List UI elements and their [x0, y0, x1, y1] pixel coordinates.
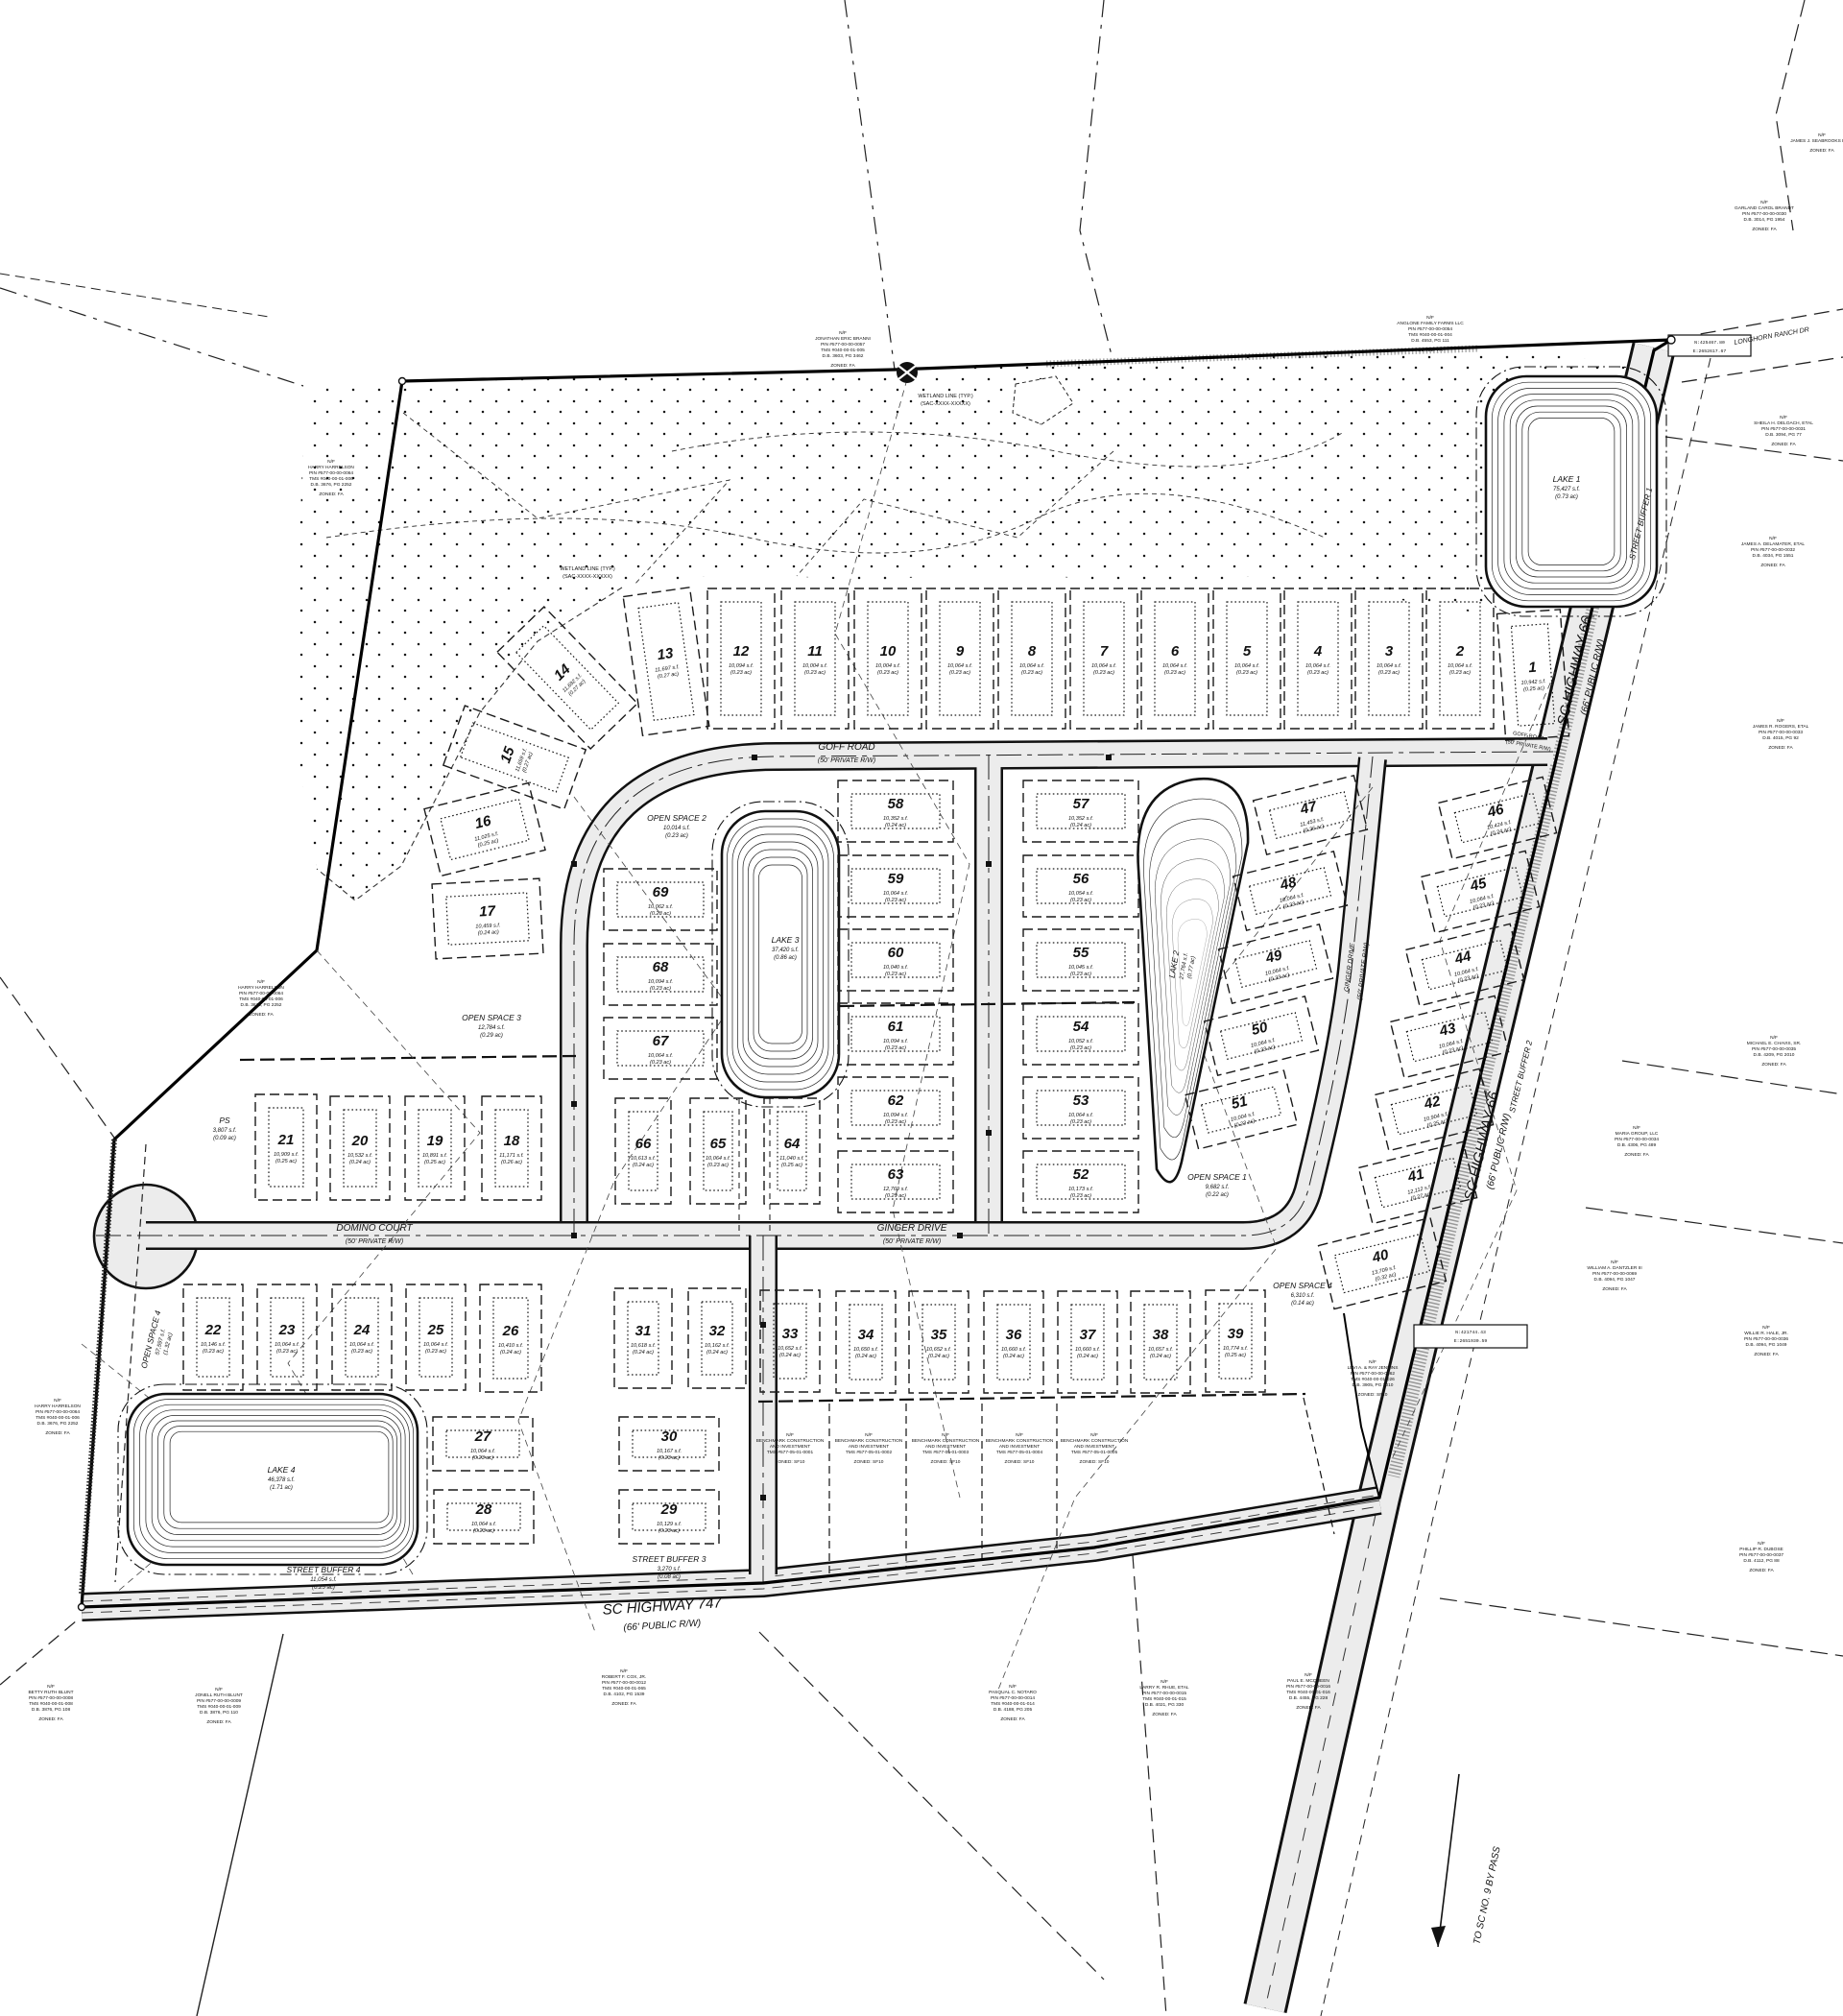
offsite-parcel-lines — [0, 0, 1843, 2016]
owner-note-line: PHILLIP R. DUBOSE — [1739, 1547, 1783, 1552]
lot-number: 39 — [1228, 1326, 1244, 1342]
owner-note-line: D.B. 4455, PG 228 — [1289, 1695, 1328, 1701]
lot-number: 67 — [653, 1033, 669, 1049]
lot-area: 10,613 s.f. — [631, 1156, 656, 1162]
owner-note: N/FGARLAND CAROL BRANDTPIN #577-00-00-00… — [1735, 200, 1794, 232]
lot-area: 10,064 s.f. — [471, 1522, 496, 1527]
lot: 5210,173 s.f.(0.23 ac) — [1023, 1151, 1138, 1212]
owner-note-line: ZONED: FA — [830, 363, 855, 369]
lot-area: 10,657 s.f. — [1148, 1347, 1173, 1353]
lot-acres: (0.23 ac) — [1021, 670, 1042, 676]
lot-acres: (0.24 ac) — [1003, 1354, 1024, 1359]
lake-label-name: LAKE 4 — [268, 1465, 296, 1475]
ginger-drive-rw: (50' PRIVATE R/W) — [883, 1238, 941, 1245]
lot: 2110,909 s.f.(0.25 ac) — [255, 1094, 317, 1200]
owner-note-line: TMS #577-05-01-0001 — [767, 1450, 814, 1455]
lot: 1010,004 s.f.(0.23 ac) — [854, 588, 921, 729]
pump-station-label: PS3,807 s.f.(0.09 ac) — [213, 1116, 237, 1141]
lot-acres: (0.23 ac) — [1164, 670, 1185, 676]
to-sc9-label: TO SC NO. 9 BY PASS — [1472, 1845, 1502, 1945]
lot-number: 21 — [277, 1132, 295, 1148]
lot-area: 10,352 s.f. — [883, 816, 908, 822]
owner-note-line: TMS #040-00-01-006 — [309, 476, 353, 482]
lot-number: 19 — [427, 1133, 443, 1149]
lot-number: 59 — [888, 871, 904, 887]
owner-note: N/FMICHAEL E. CHAVIS, SR.PIN #577-00-00-… — [1747, 1035, 1802, 1068]
owner-note-line: PIN #577-00-00-0064 — [309, 470, 353, 476]
lot-area: 10,532 s.f. — [347, 1153, 372, 1159]
owner-note: N/FPHILLIP R. DUBOSEPIN #577-00-00-0037D… — [1739, 1541, 1783, 1573]
owner-note-line: PIN #577-00-00-0030 — [1742, 211, 1786, 217]
domino-court-rw: (50' PRIVATE R/W) — [346, 1238, 403, 1245]
owner-note-line: N/F — [942, 1432, 949, 1438]
lake-label-area: 75,427 s.f. — [1553, 487, 1580, 492]
lot-area: 10,064 s.f. — [883, 891, 908, 897]
hwy747-rw: (66' PUBLIC R/W) — [623, 1619, 701, 1634]
lot-area: 10,004 s.f. — [802, 663, 827, 669]
lot: 5410,052 s.f.(0.23 ac) — [1023, 1003, 1138, 1065]
lot-number: 49 — [1263, 947, 1284, 967]
lot-acres: (0.23 ac) — [1070, 972, 1091, 977]
owner-note-line: BENCHMARK CONSTRUCTION — [912, 1438, 980, 1444]
street-buffer-label-acres: (0.25 ac) — [312, 1585, 335, 1591]
owner-note-line: PIN #577-00-00-0032 — [1751, 547, 1795, 553]
lot-number: 13 — [657, 645, 676, 663]
lot: 5610,054 s.f.(0.23 ac) — [1023, 855, 1138, 917]
lot-number: 54 — [1073, 1019, 1089, 1035]
owner-note-line: BENCHMARK CONSTRUCTION — [1061, 1438, 1129, 1444]
lot: 810,064 s.f.(0.23 ac) — [998, 588, 1065, 729]
lot: 6110,094 s.f.(0.23 ac) — [838, 1003, 953, 1065]
owner-note: N/FHARRY HARRELSONPIN #577-00-00-0064TMS… — [35, 1398, 81, 1436]
owner-note: N/FJONATHAN ERIC BRANNIPIN #577-00-00-00… — [815, 330, 871, 369]
owner-note-line: N/F — [1769, 536, 1777, 541]
owner-note-line: PIN #577-00-00-0012 — [602, 1680, 646, 1686]
owner-note-line: D.B. 3876, PG 110 — [200, 1710, 238, 1716]
owner-note-line: N/F — [1009, 1684, 1017, 1690]
owner-note-line: WILLIAM A. DANTZLER III — [1587, 1265, 1641, 1271]
lot: 6010,040 s.f.(0.23 ac) — [838, 929, 953, 991]
lot-number: 62 — [888, 1092, 904, 1109]
owner-note-line: N/F — [1780, 415, 1787, 420]
lot: 5310,064 s.f.(0.23 ac) — [1023, 1077, 1138, 1139]
lot-number: 7 — [1100, 643, 1109, 660]
street-buffer-label-area: 3,270 s.f. — [658, 1567, 682, 1572]
lot-number: 57 — [1073, 796, 1089, 812]
lot-acres: (0.23 ac) — [730, 670, 752, 676]
lot-area: 10,410 s.f. — [498, 1343, 523, 1349]
lot: 1210,094 s.f.(0.23 ac) — [707, 588, 775, 729]
lot: 6411,040 s.f.(0.25 ac) — [764, 1098, 820, 1204]
owner-note-line: TMS #577-05-01-0004 — [996, 1450, 1043, 1455]
owner-note-line: PAUL E. MCQUEEN — [1287, 1678, 1329, 1684]
owner-note-line: N/F — [839, 330, 847, 336]
lot-number: 3 — [1385, 643, 1394, 660]
lot-area: 10,064 s.f. — [648, 1053, 673, 1059]
lot-acres: (0.23 ac) — [1378, 670, 1400, 676]
owner-note-line: ZONED: SF10 — [1358, 1392, 1388, 1398]
open-space-label-area: 12,784 s.f. — [478, 1025, 505, 1031]
lot-area: 10,909 s.f. — [274, 1152, 299, 1158]
to-sc9-arrow-icon — [1431, 1774, 1459, 1947]
lot: 2510,064 s.f.(0.23 ac) — [406, 1284, 466, 1390]
lot-number: 66 — [635, 1136, 652, 1152]
lot-acres: (0.23 ac) — [1070, 1119, 1091, 1125]
goff-road-label: GOFF ROAD — [818, 742, 874, 753]
owner-note-line: ZONED: FA — [611, 1701, 636, 1707]
owner-note-line: N/F — [1777, 718, 1784, 724]
lot-number: 15 — [497, 744, 518, 765]
owner-note-line: HARRY HARRELSON — [35, 1404, 81, 1409]
lot-acres: (0.25 ac) — [1225, 1353, 1246, 1358]
open-space-label: OPEN SPACE 19,682 s.f.(0.22 ac) — [1187, 1172, 1247, 1198]
lot-number: 35 — [931, 1327, 947, 1343]
owner-note-line: TMS #577-05-01-0005 — [1071, 1450, 1118, 1455]
owner-note-line: D.B. 3014, PG 1954 — [1744, 217, 1785, 223]
street-buffer-label-name: STREET BUFFER 3 — [633, 1554, 706, 1564]
lot: 2610,410 s.f.(0.24 ac) — [480, 1284, 541, 1392]
ginger-drive-label: GINGER DRIVE — [877, 1223, 947, 1234]
lot-area: 10,660 s.f. — [1075, 1347, 1100, 1353]
lot-number: 2 — [1455, 643, 1465, 660]
coordinate-text: N:425467.80 — [1694, 340, 1725, 346]
open-space-label: OPEN SPACE 210,014 s.f.(0.23 ac) — [647, 813, 706, 839]
lake-label: LAKE 175,427 s.f.(0.73 ac) — [1553, 474, 1581, 500]
owner-note: N/FWILLIE R. HALE, JR.PIN #577-00-00-003… — [1744, 1325, 1788, 1357]
lake-label: LAKE 446,378 s.f.(1.71 ac) — [268, 1465, 296, 1491]
owner-note-line: N/F — [786, 1432, 794, 1438]
lot-number: 64 — [784, 1136, 801, 1152]
owner-note-line: D.B. 4094, PG 1047 — [1594, 1277, 1636, 1283]
owner-note: N/FROBERT F. COX, JR.PIN #577-00-00-0012… — [602, 1668, 647, 1707]
owner-note-line: N/F — [1762, 1325, 1770, 1331]
owner-note-line: AND INVESTMENT — [770, 1444, 810, 1450]
owner-note-line: ZONED: FA — [45, 1430, 70, 1436]
lot-number: 32 — [709, 1323, 726, 1339]
lot-area: 10,064 s.f. — [1448, 663, 1472, 669]
lot: 5710,352 s.f.(0.24 ac) — [1023, 780, 1138, 842]
owner-note-line: TMS #040-00-01-006 — [36, 1415, 80, 1421]
pump-station-label-acres: (0.09 ac) — [213, 1136, 236, 1141]
lot: 6312,769 s.f.(0.29 ac) — [838, 1151, 953, 1212]
lot-number: 68 — [653, 959, 669, 975]
lot-number: 55 — [1073, 945, 1089, 961]
open-space-label: OPEN SPACE 312,784 s.f.(0.29 ac) — [462, 1013, 521, 1039]
open-space-label: OPEN SPACE 457,597 s.f.(1.32 ac) — [139, 1309, 179, 1374]
lot-number: 69 — [653, 884, 669, 900]
lot-number: 24 — [353, 1322, 371, 1338]
lot-area: 10,064 s.f. — [947, 663, 972, 669]
lot-acres: (0.23 ac) — [658, 1455, 680, 1461]
owner-note-line: D.B. 4306, PG 489 — [1617, 1142, 1657, 1148]
lot-number: 44 — [1452, 948, 1473, 968]
lot-number: 34 — [858, 1327, 874, 1343]
open-space-label-name: OPEN SPACE 3 — [462, 1013, 521, 1022]
lot-area: 10,064 s.f. — [1234, 663, 1259, 669]
street-buffer-label-acres: (0.08 ac) — [658, 1574, 681, 1580]
owner-note-line: N/F — [1758, 1541, 1765, 1547]
owner-note-line: TMS #577-05-01-0002 — [846, 1450, 893, 1455]
owner-note-line: ZONED: FA — [206, 1719, 231, 1725]
lot: 3410,650 s.f.(0.24 ac) — [836, 1291, 896, 1393]
lot-acres: (0.26 ac) — [501, 1160, 522, 1165]
owner-note-line: ZONED: FA — [1152, 1712, 1177, 1717]
owner-note-line: HARRY HARRELSON — [308, 465, 354, 470]
domino-court-label: DOMINO COURT — [336, 1223, 413, 1234]
pump-station-label-area: 3,807 s.f. — [213, 1128, 237, 1134]
owner-note-line: TMS #040-00-01-014 — [991, 1701, 1035, 1707]
lot-acres: (0.23 ac) — [650, 1060, 671, 1066]
lot-area: 10,064 s.f. — [1068, 1113, 1093, 1118]
coordinate-text: N:421744.43 — [1455, 1330, 1486, 1335]
lot: 2310,064 s.f.(0.23 ac) — [257, 1284, 317, 1390]
owner-note: N/FPASQUAL C. NOTAROPIN #577-00-00-0014T… — [989, 1684, 1037, 1722]
lot-area: 10,064 s.f. — [1305, 663, 1330, 669]
owner-note-line: JAMES R. ROGERS, ETAL — [1753, 724, 1809, 730]
lot-number: 27 — [474, 1428, 491, 1445]
owner-note-line: ZONED: FA — [1000, 1716, 1025, 1722]
lot: 6510,064 s.f.(0.23 ac) — [690, 1098, 746, 1204]
lot-area: 11,040 s.f. — [779, 1156, 804, 1162]
owner-note-line: D.B. 3603, PG 3462 — [823, 353, 864, 359]
open-space-label-area: 9,682 s.f. — [1206, 1185, 1230, 1190]
owner-note-line: N/F — [1611, 1260, 1618, 1265]
lot-number: 1 — [1528, 660, 1538, 677]
open-space-label-acres: (0.29 ac) — [480, 1033, 503, 1039]
owner-note-line: N/F — [1818, 132, 1826, 138]
owner-note-line: LARRY R. RHUE, ETAL — [1139, 1685, 1189, 1691]
lot-area: 10,064 s.f. — [1376, 663, 1401, 669]
owner-note-line: PIN #577-00-00-0033 — [1759, 730, 1803, 735]
owner-note-line: PIN #577-00-00-0057 — [821, 342, 865, 348]
lot-number: 4 — [1313, 643, 1323, 660]
owner-note-line: JONELL RUTH BLUNT — [195, 1692, 243, 1698]
lot-acres: (0.23 ac) — [650, 911, 671, 917]
lot: 710,064 s.f.(0.23 ac) — [1070, 588, 1137, 729]
lot-number: 10 — [880, 643, 897, 660]
owner-note-line: ZONED: FA — [38, 1716, 63, 1722]
lot-acres: (0.23 ac) — [1070, 1045, 1091, 1051]
site-plan-sheet: 110,942 s.f.(0.25 ac)210,064 s.f.(0.23 a… — [0, 0, 1843, 2016]
owner-note: N/FBENCHMARK CONSTRUCTIONAND INVESTMENTT… — [986, 1432, 1054, 1465]
lot-number: 46 — [1485, 801, 1506, 821]
lot-acres: (0.29 ac) — [885, 1193, 906, 1199]
goff-road-rw: (50' PRIVATE R/W) — [818, 757, 875, 764]
owner-note-line: TMS #040-00-01-065 — [602, 1686, 646, 1692]
lot-number: 31 — [635, 1323, 652, 1339]
lot-number: 56 — [1073, 871, 1089, 887]
owner-note-line: N/F — [1161, 1679, 1168, 1685]
lot: 1910,891 s.f.(0.25 ac) — [405, 1096, 465, 1200]
street-buffer-label-name: STREET BUFFER 2 — [1507, 1039, 1534, 1113]
lot-number: 63 — [888, 1166, 904, 1183]
lake-label-area: 46,378 s.f. — [268, 1477, 295, 1483]
owner-note-line: PIN #577-00-00-0036 — [1744, 1336, 1788, 1342]
lot: 5110,004 s.f.(0.23 ac) — [1185, 1070, 1298, 1149]
owner-note-line: PIN #577-00-00-0016 — [1286, 1684, 1330, 1690]
lot: 2710,064 s.f.(0.23 ac) — [433, 1417, 533, 1471]
wetland-label-2: WETLAND LINE (TYP.) — [918, 394, 973, 399]
owner-note-line: TMS #040-00-01-008 — [29, 1701, 73, 1707]
lot-area: 10,045 s.f. — [1068, 965, 1093, 971]
lot-area: 10,173 s.f. — [1068, 1187, 1093, 1192]
owner-note-line: D.B. 3676, PG 2252 — [37, 1421, 79, 1427]
open-space-label-name: OPEN SPACE 2 — [647, 813, 706, 823]
lot-area: 10,064 s.f. — [1091, 663, 1116, 669]
lot-number: 37 — [1080, 1327, 1096, 1343]
owner-note-line: D.B. 4015, PG 92 — [1762, 735, 1799, 741]
lot-number: 22 — [204, 1322, 222, 1338]
owner-note-line: ZONED: SF10 — [776, 1459, 805, 1465]
lot-area: 10,064 s.f. — [349, 1342, 374, 1348]
owner-note-line: ZONED: FA — [319, 492, 344, 497]
lot-area: 10,146 s.f. — [201, 1342, 226, 1348]
lot-area: 10,167 s.f. — [657, 1449, 682, 1454]
owner-note-line: ZONED: FA — [1296, 1705, 1321, 1711]
lot: 1811,171 s.f.(0.26 ac) — [482, 1096, 541, 1200]
lot-number: 58 — [888, 796, 904, 812]
lot: 3210,162 s.f.(0.24 ac) — [688, 1288, 746, 1388]
pump-station-label-name: PS — [219, 1116, 230, 1125]
lot-number: 17 — [479, 903, 496, 921]
lot: 5510,045 s.f.(0.23 ac) — [1023, 929, 1138, 991]
owner-note-line: BENCHMARK CONSTRUCTION — [756, 1438, 825, 1444]
coordinate-text: E:2651930.59 — [1454, 1338, 1488, 1344]
lot-acres: (0.24 ac) — [1077, 1354, 1098, 1359]
owner-note-line: D.B. 4553, PG 111 — [1411, 338, 1449, 344]
lot: 1311,697 s.f.(0.27 ac) — [623, 588, 709, 735]
lot: 4910,064 s.f.(0.23 ac) — [1219, 924, 1333, 1003]
lot-area: 10,064 s.f. — [1162, 663, 1187, 669]
owner-note-line: PIN #577-00-00-0014 — [991, 1695, 1035, 1701]
lot: 610,064 s.f.(0.23 ac) — [1141, 588, 1209, 729]
owner-note-line: ZONED: FA — [1761, 1062, 1786, 1068]
lot-number: 40 — [1370, 1246, 1391, 1266]
lot: 310,064 s.f.(0.23 ac) — [1355, 588, 1423, 729]
lot: 3110,618 s.f.(0.24 ac) — [614, 1288, 672, 1388]
lot-number: 23 — [278, 1322, 296, 1338]
open-space-label-acres: (0.23 ac) — [665, 833, 688, 839]
lot-acres: (0.24 ac) — [885, 823, 906, 828]
owner-note-line: ZONED: FA — [1624, 1152, 1649, 1158]
lot-number: 43 — [1437, 1020, 1458, 1040]
lot-number: 8 — [1028, 643, 1037, 660]
lot-area: 10,774 s.f. — [1223, 1346, 1248, 1352]
lot-number: 52 — [1073, 1166, 1089, 1183]
lot-acres: (0.23 ac) — [707, 1163, 729, 1168]
lot: 910,064 s.f.(0.23 ac) — [926, 588, 993, 729]
owner-note-line: D.B. 4102, PG 1539 — [604, 1692, 645, 1697]
wetland-sub-2: (SAC-XXXX-XXXXX) — [921, 401, 970, 407]
owner-note-line: D.B. 3876, PG 108 — [32, 1707, 71, 1713]
owner-note-line: ANGLONE FAMILY FARMS LLC — [1397, 321, 1464, 326]
lot: 3810,657 s.f.(0.24 ac) — [1131, 1291, 1190, 1393]
lot-number: 41 — [1405, 1165, 1425, 1186]
lot-area: 10,094 s.f. — [883, 1039, 908, 1044]
lot-acres: (0.24 ac) — [478, 929, 499, 936]
owner-note-line: WILLIE R. HALE, JR. — [1744, 1331, 1788, 1336]
lot: 5010,064 s.f.(0.23 ac) — [1205, 996, 1319, 1075]
lot: 5810,352 s.f.(0.24 ac) — [838, 780, 953, 842]
lot-number: 42 — [1422, 1092, 1443, 1113]
owner-note-line: PIN #577-00-00-0069 — [1592, 1271, 1637, 1277]
coordinate-box: N:421744.43E:2651930.59 — [1414, 1325, 1527, 1348]
owner-note-line: JAMES J. SEABROOKS ETAL — [1790, 138, 1843, 144]
lot-area: 10,660 s.f. — [1001, 1347, 1026, 1353]
owner-note-line: PIN #577-00-00-0009 — [197, 1698, 241, 1704]
lot-acres: (0.23 ac) — [658, 1528, 680, 1534]
lot-area: 10,094 s.f. — [648, 979, 673, 985]
lake-label-acres: (1.71 ac) — [270, 1485, 293, 1491]
lot-area: 10,650 s.f. — [853, 1347, 878, 1353]
owner-note-line: BENCHMARK CONSTRUCTION — [986, 1438, 1054, 1444]
owner-note-line: N/F — [54, 1398, 61, 1404]
lot-number: 33 — [782, 1326, 799, 1342]
owner-note-line: PIN #577-00-00-0035 — [1752, 1046, 1796, 1052]
owner-note: N/FJAMES J. SEABROOKS ETALZONED: FA — [1790, 132, 1843, 154]
owner-note-line: N/F — [620, 1668, 628, 1674]
lot: 2910,129 s.f.(0.23 ac) — [619, 1490, 719, 1544]
lot-number: 36 — [1006, 1327, 1022, 1343]
owner-note-line: N/F — [1760, 200, 1768, 205]
lot: 2810,064 s.f.(0.23 ac) — [434, 1490, 534, 1544]
open-space-label-acres: (0.22 ac) — [1206, 1192, 1229, 1198]
lot-acres: (0.25 ac) — [275, 1159, 297, 1164]
owner-note-line: PIN #577-00-00-0064 — [239, 991, 283, 996]
owner-note-line: PIN #577-00-00-0037 — [1739, 1552, 1783, 1558]
lot-acres: (0.24 ac) — [1150, 1354, 1171, 1359]
wetland-label-1: WETLAND LINE (TYP.) — [560, 566, 615, 572]
owner-note-line: ZONED: SF10 — [1005, 1459, 1035, 1465]
lot: 1110,004 s.f.(0.23 ac) — [781, 588, 849, 729]
lot-number: 20 — [351, 1133, 369, 1149]
lake-label-name: LAKE 3 — [772, 935, 800, 945]
owner-note: N/FJAMES A. DELAMATER, ETALPIN #577-00-0… — [1741, 536, 1806, 568]
owner-note-line: N/F — [1770, 1035, 1778, 1041]
lot-acres: (0.23 ac) — [885, 1045, 906, 1051]
lot-area: 10,052 s.f. — [1068, 1039, 1093, 1044]
lot: 6610,613 s.f.(0.24 ac) — [615, 1098, 671, 1204]
lot: 6910,062 s.f.(0.23 ac) — [604, 869, 717, 930]
owner-note-line: TMS #040-00-01-004 — [1408, 332, 1452, 338]
lot: 4810,064 s.f.(0.23 ac) — [1233, 852, 1348, 930]
lot-acres: (0.24 ac) — [633, 1163, 654, 1168]
owner-note-line: N/F — [1016, 1432, 1023, 1438]
lot: 2210,146 s.f.(0.23 ac) — [183, 1284, 243, 1390]
lot-acres: (0.23 ac) — [885, 972, 906, 977]
lot: 1710,459 s.f.(0.24 ac) — [432, 878, 543, 959]
lot-area: 10,064 s.f. — [706, 1156, 730, 1162]
owner-note-line: ZONED: FA — [1771, 442, 1796, 447]
street-buffer-label-name: STREET BUFFER 4 — [287, 1565, 361, 1574]
lot-number: 65 — [710, 1136, 727, 1152]
lot-area: 10,040 s.f. — [883, 965, 908, 971]
lake-label-name: LAKE 1 — [1553, 474, 1581, 484]
lot-acres: (0.24 ac) — [349, 1160, 371, 1165]
lot-number: 9 — [956, 643, 965, 660]
lot-acres: (0.23 ac) — [1449, 670, 1471, 676]
lot: 6710,064 s.f.(0.23 ac) — [604, 1018, 717, 1079]
coordinate-text: E:2652617.67 — [1693, 348, 1727, 354]
lot: 3010,167 s.f.(0.23 ac) — [619, 1417, 719, 1471]
lot-number: 38 — [1153, 1327, 1169, 1343]
open-space-label: OPEN SPACE 46,310 s.f.(0.14 ac) — [1273, 1281, 1332, 1307]
lot: 2410,064 s.f.(0.23 ac) — [332, 1284, 392, 1390]
lot-acres: (0.25 ac) — [424, 1160, 445, 1165]
owner-note-line: N/F — [1090, 1432, 1098, 1438]
lot: 510,064 s.f.(0.23 ac) — [1213, 588, 1281, 729]
lot-area: 10,064 s.f. — [423, 1342, 448, 1348]
